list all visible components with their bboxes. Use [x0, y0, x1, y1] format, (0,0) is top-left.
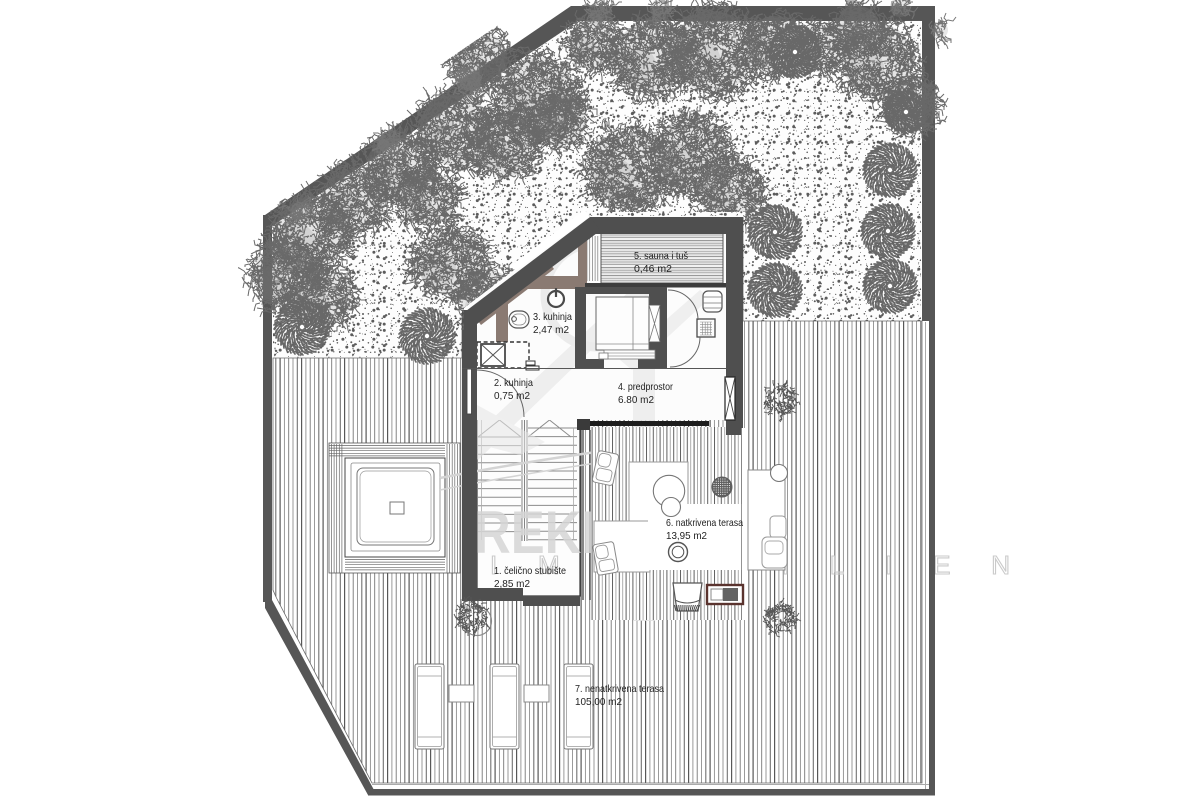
svg-text:6.80 m2: 6.80 m2: [618, 394, 654, 406]
svg-text:4. predprostor: 4. predprostor: [618, 381, 673, 393]
svg-text:2,85 m2: 2,85 m2: [494, 578, 530, 590]
svg-text:2. kuhinja: 2. kuhinja: [494, 377, 533, 389]
svg-text:3. kuhinja: 3. kuhinja: [533, 311, 572, 323]
svg-text:6. natkrivena terasa: 6. natkrivena terasa: [666, 517, 743, 529]
svg-text:13,95 m2: 13,95 m2: [666, 530, 707, 542]
svg-text:2,47 m2: 2,47 m2: [533, 324, 569, 336]
svg-text:1. čelično stubište: 1. čelično stubište: [494, 565, 566, 577]
svg-text:5. sauna i tuš: 5. sauna i tuš: [634, 250, 688, 262]
svg-text:7. nenatkrivena terasa: 7. nenatkrivena terasa: [575, 683, 664, 695]
svg-text:0,46 m2: 0,46 m2: [634, 263, 672, 275]
svg-text:0,75 m2: 0,75 m2: [494, 390, 530, 402]
svg-text:105,00 m2: 105,00 m2: [575, 696, 622, 708]
